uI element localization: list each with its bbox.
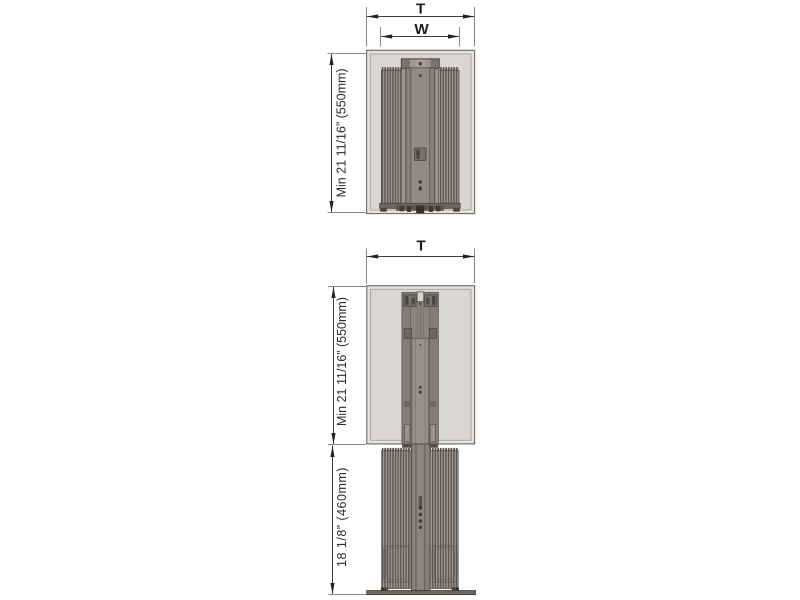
svg-text:Min 21 11/16” (550mm): Min 21 11/16” (550mm) [335, 297, 349, 426]
svg-text:T: T [416, 238, 426, 255]
svg-text:Min 21 11/16” (550mm): Min 21 11/16” (550mm) [335, 68, 349, 197]
svg-text:18 1/8” (460mm): 18 1/8” (460mm) [335, 467, 349, 567]
svg-text:W: W [414, 21, 429, 38]
svg-text:T: T [416, 0, 426, 17]
